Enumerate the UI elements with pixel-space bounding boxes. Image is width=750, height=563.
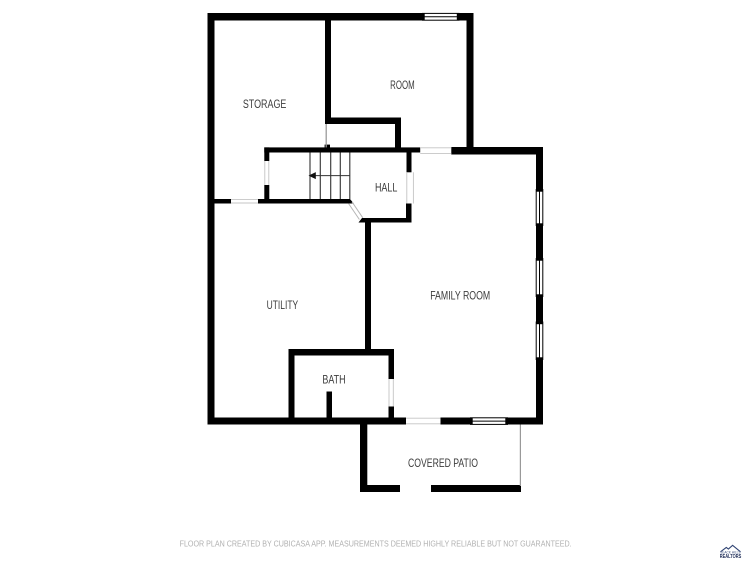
svg-text:FLOOR PLAN CREATED BY CUBICASA: FLOOR PLAN CREATED BY CUBICASA APP. MEAS… <box>180 540 572 549</box>
svg-text:UTILITY: UTILITY <box>267 300 299 312</box>
svg-text:ROOM: ROOM <box>390 80 415 92</box>
svg-text:FAMILY ROOM: FAMILY ROOM <box>430 291 490 303</box>
svg-text:BATH: BATH <box>322 374 345 386</box>
svg-text:HALL: HALL <box>375 183 398 195</box>
svg-text:STORAGE: STORAGE <box>243 99 287 111</box>
svg-text:COVERED PATIO: COVERED PATIO <box>408 458 478 470</box>
svg-text:REALTORS: REALTORS <box>720 554 742 560</box>
